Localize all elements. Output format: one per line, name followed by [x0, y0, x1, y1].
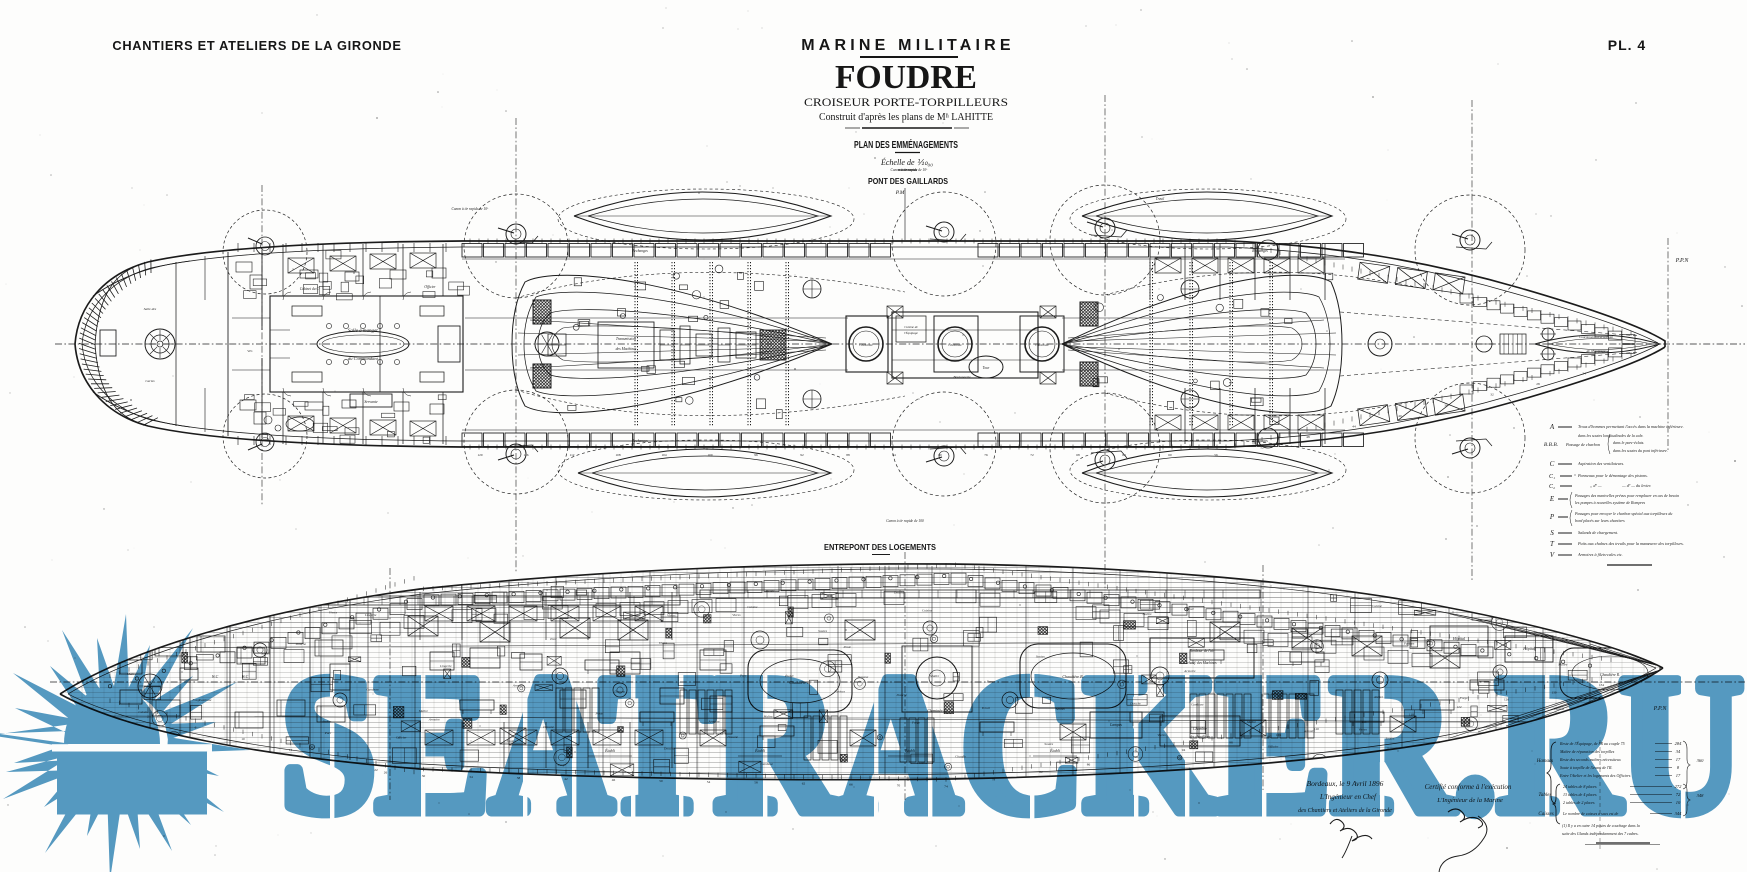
svg-text:24: 24	[1582, 372, 1586, 376]
svg-text:Aspiration des ventilateurs.: Aspiration des ventilateurs.	[1577, 461, 1624, 466]
svg-text:P.M: P.M	[895, 190, 905, 196]
svg-text:Armoires à filets-cales etc.: Armoires à filets-cales etc.	[1577, 552, 1623, 557]
svg-text:Vivres: Vivres	[732, 613, 741, 617]
svg-text:60: 60	[1168, 453, 1172, 457]
svg-text:Transmission: Transmission	[616, 337, 636, 341]
svg-text:Échelle de ⅒₀₀: Échelle de ⅒₀₀	[880, 157, 933, 167]
svg-text:Passages des manivelles prévus: Passages des manivelles prévus pour remp…	[1574, 493, 1679, 498]
svg-text:Servante: Servante	[364, 400, 378, 404]
svg-text:Cuisine: Cuisine	[922, 609, 933, 613]
svg-text:SEATRACKER.RU: SEATRACKER.RU	[281, 636, 1743, 853]
svg-text:C₁: C₁	[1549, 474, 1555, 480]
svg-text:Cheminée: Cheminée	[859, 343, 873, 347]
svg-text:Cheminée: Cheminée	[1035, 343, 1049, 347]
svg-text:bord placés sur leurs chanti: bord placés sur leurs chantiers	[1575, 518, 1625, 523]
svg-text:P.P.N: P.P.N	[1675, 258, 1690, 264]
svg-text:Puits aux chaînes des treuils: Puits aux chaînes des treuils pour la ma…	[1577, 541, 1684, 546]
svg-text:88: 88	[846, 453, 850, 457]
svg-text:dans le parc-éclats.: dans le parc-éclats.	[1613, 440, 1644, 445]
svg-text:44: 44	[1352, 425, 1356, 429]
svg-text:S: S	[1550, 529, 1554, 537]
svg-text:C₂: C₂	[1549, 484, 1555, 490]
svg-text:Salle à manger: Salle à manger	[348, 329, 378, 334]
svg-text:Cabinet du Cᴸ: Cabinet du Cᴸ	[300, 287, 321, 291]
svg-text:C: C	[1550, 460, 1555, 468]
svg-text:A: A	[1549, 423, 1555, 431]
svg-text:des Machines: des Machines	[616, 347, 637, 351]
svg-text:104: 104	[661, 453, 666, 457]
svg-text:Salands de chargement.: Salands de chargement.	[1578, 530, 1618, 535]
svg-text:Vivres: Vivres	[329, 610, 338, 614]
svg-text:dans les soutes longitudinales: dans les soutes longitudinales de la cal…	[1578, 433, 1643, 438]
svg-text:— dº — du levier.: — dº — du levier.	[1621, 483, 1651, 488]
svg-text:Soutes: Soutes	[261, 652, 271, 656]
svg-text:Passages pour envoyer le charb: Passages pour envoyer le charbon spécial…	[1574, 511, 1672, 516]
svg-text:FOUDRE: FOUDRE	[835, 59, 977, 96]
svg-text:PL. 4: PL. 4	[1608, 37, 1646, 53]
svg-text:PONT DES GAILLARDS: PONT DES GAILLARDS	[868, 176, 948, 186]
svg-text:92: 92	[800, 453, 804, 457]
svg-text:28: 28	[1536, 382, 1540, 386]
svg-text:de l'Équipage: de l'Équipage	[1587, 348, 1606, 353]
svg-text:Cuisine: Cuisine	[747, 605, 758, 609]
svg-text:Atelier: Atelier	[764, 589, 775, 593]
svg-text:Construit d'après les plans de: Construit d'après les plans de Mʱ LAHITT…	[819, 112, 993, 123]
svg-text:32: 32	[1490, 393, 1494, 397]
svg-text:Officier: Officier	[424, 285, 436, 289]
svg-text:Tour: Tour	[983, 366, 990, 370]
svg-text:Cheminée: Cheminée	[948, 343, 962, 347]
svg-text:Salle des: Salle des	[144, 307, 157, 311]
svg-text:W.C: W.C	[212, 675, 219, 679]
svg-text:Couronnement et retraite: Couronnement et retraite	[1579, 335, 1614, 339]
svg-text:V: V	[1550, 551, 1555, 559]
svg-text:Rechanges: Rechanges	[1251, 249, 1268, 253]
svg-text:Rechanges: Rechanges	[631, 249, 648, 253]
svg-text:Rechanges: Rechanges	[631, 439, 648, 443]
svg-text:P: P	[1549, 513, 1555, 521]
svg-text:120: 120	[477, 453, 482, 457]
svg-text:Cartes: Cartes	[145, 379, 155, 383]
svg-text:Vér.: Vér.	[247, 349, 253, 353]
svg-text:dans les soutes du pont inféri: dans les soutes du pont inférieure.	[1613, 448, 1668, 453]
svg-text:B.B.B.: B.B.B.	[1544, 442, 1558, 448]
svg-text:les pompes à nouvelles systèm: les pompes à nouvelles système de Rompre…	[1575, 500, 1646, 505]
svg-text:Canon à tir rapide de 10ᴸ: Canon à tir rapide de 10ᴸ	[890, 168, 928, 172]
svg-text:Boulangerie: Boulangerie	[953, 375, 971, 379]
svg-text:72: 72	[1030, 453, 1034, 457]
svg-text:Vivres: Vivres	[667, 614, 676, 618]
svg-text:Maître: Maître	[1142, 612, 1153, 616]
svg-text:Treuil: Treuil	[1156, 197, 1164, 201]
svg-text:CHANTIERS ET ATELIERS DE LA GI: CHANTIERS ET ATELIERS DE LA GIRONDE	[112, 38, 401, 53]
svg-text:Panneaux pour le démontage des: Panneaux pour le démontage des pistons.	[1577, 473, 1648, 478]
svg-text:l'Équipage: l'Équipage	[904, 330, 918, 335]
svg-text:W.C: W.C	[242, 675, 249, 679]
svg-text:76: 76	[984, 453, 988, 457]
svg-text:Lingerie: Lingerie	[364, 613, 377, 617]
svg-text:Canon à tir rapide de 100: Canon à tir rapide de 100	[886, 519, 924, 523]
svg-text:Cuisine: Cuisine	[1372, 604, 1383, 608]
svg-text:Trous d'hommes permettant l'ac: Trous d'hommes permettant l'accès dans l…	[1578, 424, 1684, 429]
svg-text:Cuisine de: Cuisine de	[904, 325, 918, 329]
svg-text:du Commandant: du Commandant	[348, 356, 379, 361]
svg-text:Passage de charbon: Passage de charbon	[1565, 442, 1600, 447]
svg-text:Soutes: Soutes	[818, 629, 828, 633]
svg-text:Canon à tir rapide de 10ᴸ: Canon à tir rapide de 10ᴸ	[451, 207, 489, 211]
svg-text:108: 108	[615, 453, 620, 457]
svg-text:PLAN DES EMMÉNAGEMENTS: PLAN DES EMMÉNAGEMENTS	[854, 138, 958, 151]
svg-text:ENTREPONT DES LOGEMENTS: ENTREPONT DES LOGEMENTS	[824, 542, 936, 552]
svg-text:MARINE MILITAIRE: MARINE MILITAIRE	[801, 37, 1015, 54]
svg-text:Douche: Douche	[893, 591, 905, 595]
svg-text:E: E	[1549, 495, 1555, 503]
svg-text:48: 48	[1306, 435, 1310, 439]
svg-text:68: 68	[1076, 453, 1080, 457]
svg-text:CROISEUR PORTE-TORPILLEURS: CROISEUR PORTE-TORPILLEURS	[804, 95, 1008, 109]
svg-text:10: 10	[241, 737, 245, 741]
